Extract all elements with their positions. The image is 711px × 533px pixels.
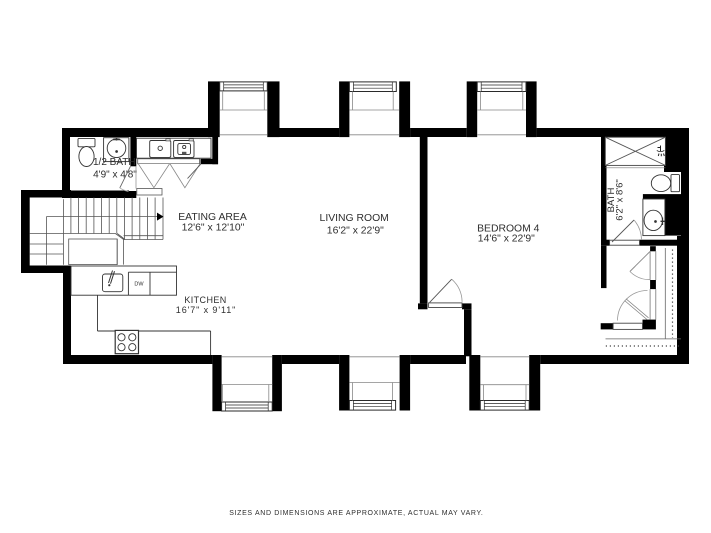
svg-text:SIZES AND DIMENSIONS ARE APPRO: SIZES AND DIMENSIONS ARE APPROXIMATE, AC… [229, 510, 483, 517]
svg-text:4'9" x 4'8": 4'9" x 4'8" [93, 169, 137, 180]
svg-text:16'7" x 9'11": 16'7" x 9'11" [176, 305, 236, 315]
svg-text:LIVING ROOM: LIVING ROOM [320, 213, 389, 224]
svg-text:DW: DW [134, 282, 144, 288]
svg-text:1/2 BATH: 1/2 BATH [93, 157, 136, 168]
svg-text:12'6" x 12'10": 12'6" x 12'10" [182, 222, 245, 233]
svg-text:6'2" x 8'6": 6'2" x 8'6" [615, 179, 626, 221]
svg-text:16'2" x 22'9": 16'2" x 22'9" [327, 225, 384, 236]
svg-text:14'6" x 22'9": 14'6" x 22'9" [478, 234, 535, 245]
svg-text:KITCHEN: KITCHEN [184, 295, 226, 305]
